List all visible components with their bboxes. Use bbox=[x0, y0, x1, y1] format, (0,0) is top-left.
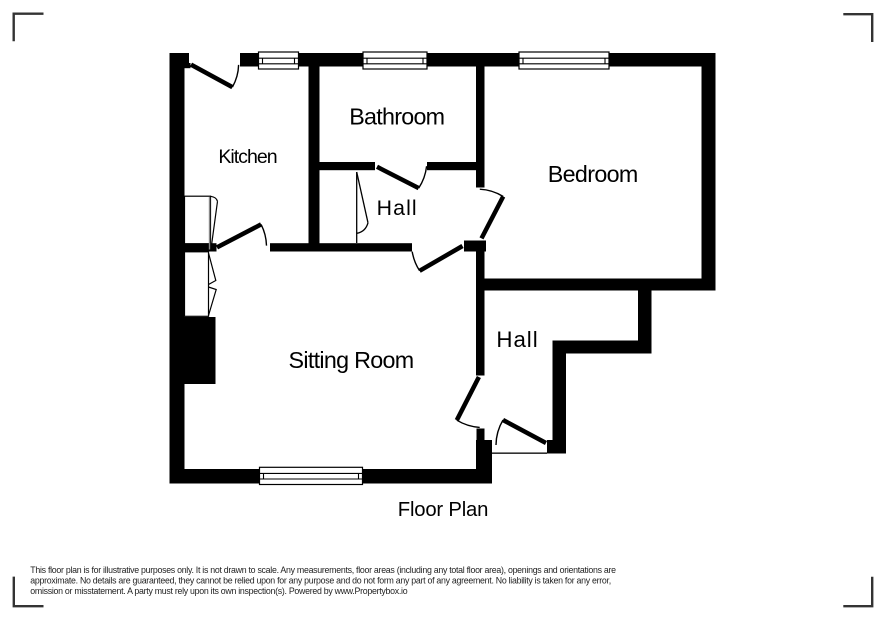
svg-text:Bathroom: Bathroom bbox=[349, 104, 444, 130]
svg-text:Floor Plan: Floor Plan bbox=[398, 499, 488, 521]
svg-text:This floor plan is for illustr: This floor plan is for illustrative purp… bbox=[30, 565, 616, 575]
svg-text:Bedroom: Bedroom bbox=[548, 161, 638, 187]
svg-text:approximate. No details are gu: approximate. No details are guaranteed, … bbox=[30, 576, 611, 586]
svg-text:omission or misstatement. A pa: omission or misstatement. A party must r… bbox=[30, 586, 407, 596]
svg-text:Hall: Hall bbox=[377, 196, 418, 220]
svg-text:Kitchen: Kitchen bbox=[218, 146, 276, 168]
svg-text:Hall: Hall bbox=[496, 327, 538, 352]
svg-text:Sitting Room: Sitting Room bbox=[289, 347, 414, 373]
